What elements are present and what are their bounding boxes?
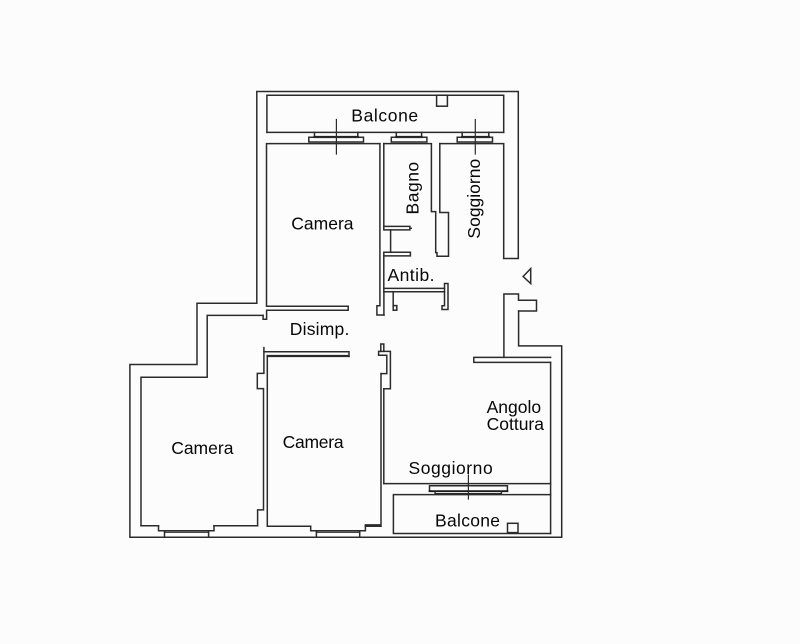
- svg-text:Bagno: Bagno: [403, 161, 423, 214]
- svg-text:Camera: Camera: [291, 213, 354, 233]
- svg-text:Camera: Camera: [283, 432, 344, 452]
- svg-text:Disimp.: Disimp.: [290, 319, 350, 339]
- svg-text:Antib.: Antib.: [388, 265, 435, 285]
- svg-text:Soggiorno: Soggiorno: [464, 159, 484, 239]
- svg-text:Balcone: Balcone: [435, 510, 500, 530]
- svg-text:Soggiorno: Soggiorno: [409, 458, 494, 478]
- svg-text:Camera: Camera: [171, 438, 234, 458]
- svg-text:Balcone: Balcone: [351, 106, 418, 126]
- svg-text:Cottura: Cottura: [487, 414, 545, 434]
